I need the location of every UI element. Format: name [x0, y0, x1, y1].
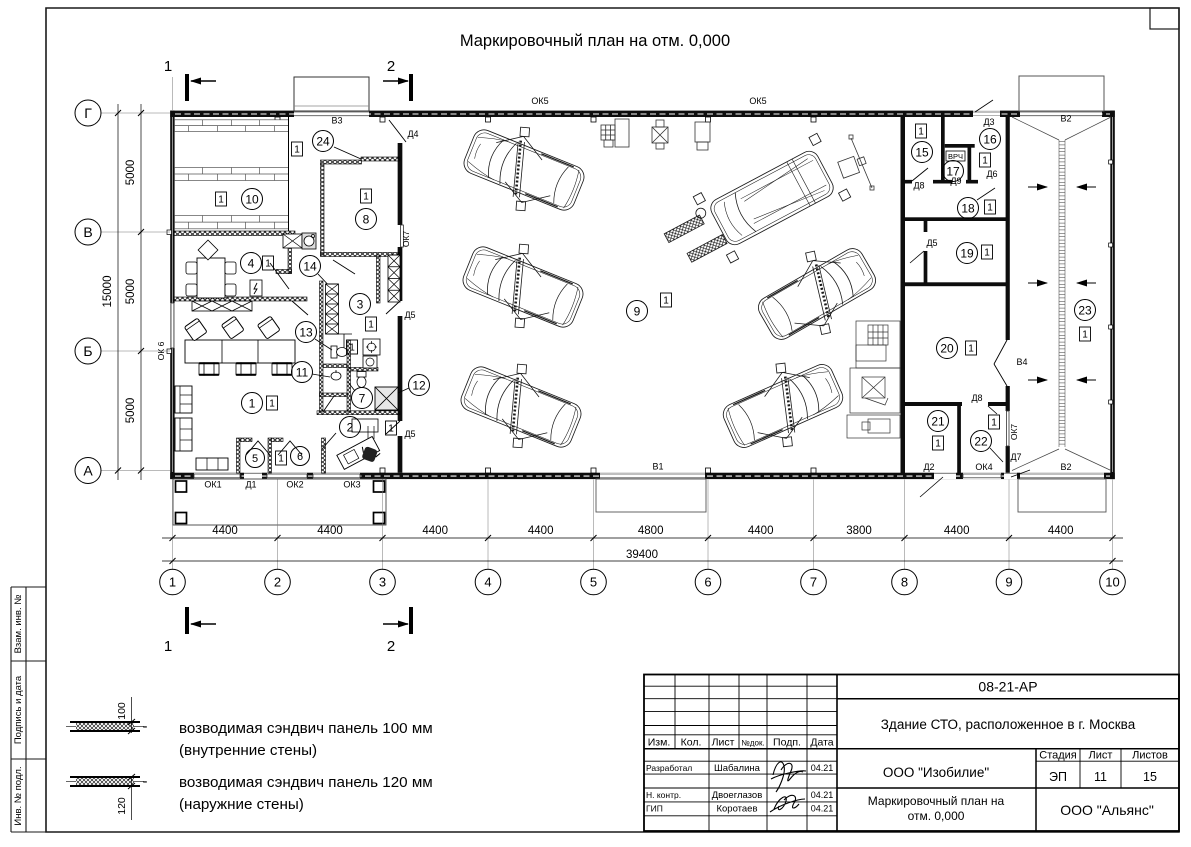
svg-text:Н. контр.: Н. контр.: [646, 790, 681, 800]
svg-text:3800: 3800: [846, 525, 872, 537]
svg-text:7: 7: [359, 391, 366, 405]
svg-text:7: 7: [810, 575, 817, 590]
svg-text:2: 2: [387, 638, 395, 655]
svg-text:ОК1: ОК1: [204, 480, 221, 490]
svg-text:В2: В2: [1060, 114, 1071, 124]
svg-text:5000: 5000: [125, 160, 137, 186]
svg-text:Дата: Дата: [810, 737, 833, 749]
svg-text:-: -: [143, 718, 148, 735]
svg-text:5000: 5000: [125, 279, 137, 305]
svg-text:Д4: Д4: [407, 129, 418, 139]
svg-text:9: 9: [634, 304, 641, 318]
svg-text:Лист: Лист: [712, 737, 735, 749]
svg-text:В2: В2: [1060, 462, 1071, 472]
svg-text:1: 1: [249, 396, 256, 410]
svg-text:В3: В3: [331, 116, 342, 126]
svg-text:Д5: Д5: [926, 238, 937, 248]
svg-text:А: А: [83, 463, 93, 479]
svg-text:4400: 4400: [944, 525, 970, 537]
svg-text:22: 22: [974, 434, 988, 448]
svg-text:ГИП: ГИП: [646, 804, 663, 814]
svg-text:ВРЧ: ВРЧ: [948, 152, 963, 161]
svg-text:4: 4: [484, 575, 491, 590]
svg-text:(наружние стены): (наружние стены): [179, 796, 304, 813]
svg-text:1: 1: [982, 156, 988, 167]
svg-text:15: 15: [1143, 770, 1157, 784]
svg-text:1: 1: [663, 296, 669, 307]
svg-text:13: 13: [299, 325, 313, 339]
svg-text:Инв. № подл.: Инв. № подл.: [13, 766, 24, 825]
svg-text:11: 11: [296, 365, 309, 379]
svg-text:4800: 4800: [638, 525, 664, 537]
svg-text:08-21-АР: 08-21-АР: [978, 679, 1037, 695]
svg-text:В4: В4: [1016, 357, 1027, 367]
svg-text:1: 1: [968, 344, 974, 355]
svg-text:1: 1: [991, 418, 997, 429]
svg-text:ОК3: ОК3: [343, 480, 360, 490]
svg-text:Д2: Д2: [923, 462, 934, 472]
svg-text:Коротаев: Коротаев: [716, 804, 757, 815]
svg-text:Взам. инв. №: Взам. инв. №: [13, 595, 24, 654]
svg-text:1: 1: [218, 195, 224, 206]
svg-text:Лист: Лист: [1089, 750, 1113, 762]
svg-text:ОК 6: ОК 6: [156, 341, 166, 360]
svg-text:5: 5: [590, 575, 597, 590]
svg-text:В: В: [83, 224, 92, 240]
svg-text:Д5: Д5: [404, 429, 415, 439]
svg-text:Маркировочный план на: Маркировочный план на: [868, 794, 1005, 808]
svg-text:1: 1: [278, 454, 284, 465]
svg-text:2: 2: [274, 575, 281, 590]
svg-text:Изм.: Изм.: [648, 737, 671, 749]
svg-text:Подп.: Подп.: [773, 737, 801, 749]
svg-text:16: 16: [983, 132, 997, 146]
svg-text:1: 1: [294, 145, 300, 156]
svg-text:04.21: 04.21: [811, 790, 834, 800]
svg-text:5: 5: [252, 453, 258, 465]
svg-text:6: 6: [297, 451, 303, 463]
svg-text:1: 1: [984, 248, 990, 259]
svg-text:Д9: Д9: [950, 176, 961, 186]
svg-text:4400: 4400: [1048, 525, 1074, 537]
svg-text:19: 19: [960, 246, 974, 260]
svg-text:6: 6: [704, 575, 711, 590]
svg-text:14: 14: [303, 259, 317, 273]
svg-text:21: 21: [931, 414, 945, 428]
svg-text:120: 120: [116, 797, 128, 815]
svg-text:ООО "Альянс": ООО "Альянс": [1060, 802, 1154, 818]
svg-text:12: 12: [412, 378, 426, 392]
svg-text:1: 1: [935, 439, 941, 450]
svg-text:Кол.: Кол.: [681, 737, 702, 749]
svg-text:возводимая сэндвич панель 100: возводимая сэндвич панель 100 мм: [179, 720, 433, 737]
svg-text:8: 8: [901, 575, 908, 590]
svg-text:1: 1: [169, 575, 176, 590]
svg-text:10: 10: [245, 192, 259, 206]
svg-text:4400: 4400: [528, 525, 554, 537]
svg-text:1: 1: [363, 192, 369, 203]
svg-text:Д8: Д8: [913, 181, 924, 191]
svg-text:-: -: [143, 773, 148, 790]
svg-text:4400: 4400: [748, 525, 774, 537]
svg-text:4400: 4400: [212, 525, 238, 537]
svg-text:Д5: Д5: [404, 310, 415, 320]
svg-text:1: 1: [349, 343, 355, 354]
svg-text:возводимая сэндвич панель 120: возводимая сэндвич панель 120 мм: [179, 774, 433, 791]
svg-text:10: 10: [1105, 575, 1119, 590]
svg-text:2: 2: [347, 420, 354, 434]
svg-text:39400: 39400: [626, 549, 658, 561]
svg-text:5000: 5000: [125, 398, 137, 424]
svg-text:15000: 15000: [102, 276, 114, 308]
svg-text:4400: 4400: [422, 525, 448, 537]
svg-text:Шабалина: Шабалина: [714, 763, 761, 774]
svg-text:отм. 0,000: отм. 0,000: [908, 809, 965, 823]
svg-text:Д7: Д7: [1010, 452, 1021, 462]
svg-text:Стадия: Стадия: [1039, 750, 1077, 762]
svg-text:Д3: Д3: [983, 117, 994, 127]
svg-text:Г: Г: [84, 105, 92, 121]
svg-text:11: 11: [1094, 770, 1107, 784]
svg-text:ЭП: ЭП: [1049, 770, 1067, 784]
svg-text:ООО "Изобилие": ООО "Изобилие": [883, 765, 989, 780]
svg-text:8: 8: [363, 212, 370, 226]
svg-text:9: 9: [1005, 575, 1012, 590]
svg-text:1: 1: [388, 424, 394, 435]
svg-text:04.21: 04.21: [811, 763, 834, 773]
svg-text:3: 3: [379, 575, 386, 590]
svg-text:23: 23: [1078, 303, 1092, 317]
svg-text:1: 1: [987, 203, 993, 214]
svg-text:1: 1: [1082, 330, 1088, 341]
svg-text:Д6: Д6: [986, 169, 997, 179]
svg-text:2: 2: [387, 58, 395, 75]
svg-text:1: 1: [164, 638, 172, 655]
svg-text:18: 18: [961, 201, 975, 215]
svg-text:4: 4: [248, 256, 255, 270]
svg-text:Здание СТО, расположенное в г.: Здание СТО, расположенное в г. Москва: [881, 717, 1136, 732]
svg-text:ОК7: ОК7: [401, 231, 411, 248]
svg-text:Подпись и дата: Подпись и дата: [13, 675, 24, 744]
svg-text:(внутренние стены): (внутренние стены): [179, 742, 317, 759]
svg-text:ОК5: ОК5: [749, 96, 766, 106]
svg-text:15: 15: [915, 145, 929, 159]
svg-text:Листов: Листов: [1132, 750, 1168, 762]
svg-text:№док.: №док.: [741, 739, 764, 748]
svg-text:Маркировочный план на отм. 0,0: Маркировочный план на отм. 0,000: [460, 32, 730, 50]
svg-text:Разработал: Разработал: [646, 763, 692, 773]
svg-text:ОК7: ОК7: [1009, 424, 1019, 441]
svg-text:1: 1: [368, 320, 374, 331]
svg-text:04.21: 04.21: [811, 804, 834, 814]
svg-text:3: 3: [357, 297, 364, 311]
svg-text:1: 1: [269, 399, 275, 410]
svg-text:Б: Б: [83, 343, 92, 359]
svg-text:Двоеглазов: Двоеглазов: [712, 790, 763, 801]
svg-text:20: 20: [940, 341, 954, 355]
svg-text:В1: В1: [652, 462, 663, 472]
svg-text:1: 1: [918, 127, 924, 138]
svg-text:4400: 4400: [317, 525, 343, 537]
svg-text:Д8: Д8: [971, 393, 982, 403]
svg-text:Д1: Д1: [245, 480, 256, 490]
svg-text:1: 1: [164, 58, 172, 75]
svg-text:ОК5: ОК5: [531, 96, 548, 106]
svg-text:100: 100: [116, 702, 128, 720]
svg-text:ОК2: ОК2: [286, 480, 303, 490]
svg-text:24: 24: [316, 134, 330, 148]
svg-text:ОК4: ОК4: [975, 462, 992, 472]
